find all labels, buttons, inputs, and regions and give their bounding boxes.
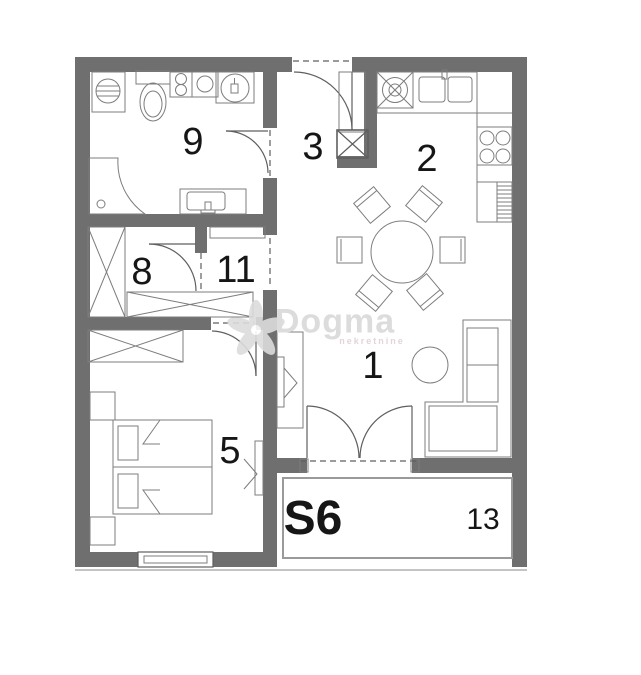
room-label-living-room: 1 xyxy=(362,347,383,385)
floor-plan: Dogma nekretnine 1 2 3 5 8 9 11 13 S6 xyxy=(0,0,641,675)
room-label-balcony: 13 xyxy=(466,505,499,535)
room-label-kitchen: 2 xyxy=(416,140,437,178)
sofa-icon xyxy=(425,320,511,457)
vanity-sink-icon xyxy=(180,189,246,214)
wardrobe-icon xyxy=(127,292,253,317)
tv-cabinet-icon xyxy=(277,332,303,428)
double-sink-icon xyxy=(419,70,472,102)
wardrobe-icon xyxy=(88,227,125,317)
hall-shelf-icon xyxy=(210,227,265,238)
boiler-icon xyxy=(216,72,254,103)
chair-icon xyxy=(406,186,443,223)
round-sink-icon xyxy=(377,72,413,108)
nightstand-icon xyxy=(90,517,115,545)
stove-icon xyxy=(477,127,512,165)
chair-icon xyxy=(337,237,362,263)
unit-label: S6 xyxy=(284,495,343,543)
tv-icon xyxy=(244,441,263,495)
fridge-icon xyxy=(477,182,512,222)
room-label-bathroom: 9 xyxy=(182,123,203,161)
bathroom-door xyxy=(226,131,268,173)
toilet-icon xyxy=(136,71,170,121)
kitchen-fixtures xyxy=(377,70,512,222)
room-label-bedroom: 5 xyxy=(219,432,240,470)
room-label-entry: 3 xyxy=(302,128,323,166)
bedroom-window xyxy=(138,552,213,567)
shower-icon xyxy=(89,158,145,214)
nightstand-icon xyxy=(90,392,115,420)
closet-door xyxy=(149,244,196,291)
coffee-table-icon xyxy=(412,347,448,383)
chair-icon xyxy=(354,187,391,224)
bathroom-counter-icon xyxy=(170,72,218,97)
washing-machine-icon xyxy=(92,72,125,112)
chair-icon xyxy=(407,274,444,311)
room-label-hallway: 11 xyxy=(216,251,255,289)
double-bed-icon xyxy=(113,420,212,514)
dining-table-icon xyxy=(371,221,433,283)
chair-icon xyxy=(440,237,465,263)
tv-icon xyxy=(277,357,297,407)
balcony-french-door xyxy=(307,406,412,458)
dining-set xyxy=(337,186,465,312)
bathroom-fixtures xyxy=(89,71,268,214)
entrance-door xyxy=(294,72,352,130)
room-label-closet: 8 xyxy=(131,253,152,291)
wardrobe-icon xyxy=(88,330,183,362)
